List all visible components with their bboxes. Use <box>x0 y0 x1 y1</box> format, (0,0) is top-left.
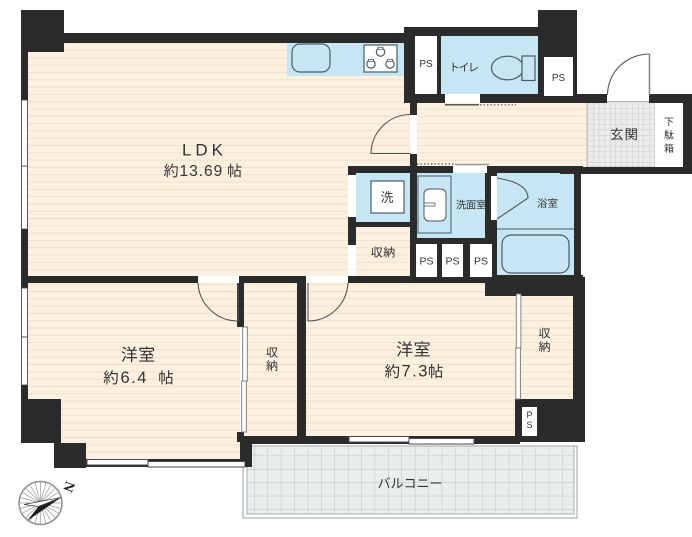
svg-text:P: P <box>526 410 532 420</box>
svg-text:6.4: 6.4 <box>121 369 148 387</box>
svg-text:PS: PS <box>445 256 459 268</box>
svg-text:S: S <box>526 420 532 430</box>
svg-text:LDK: LDK <box>182 141 227 160</box>
svg-text:PS: PS <box>474 256 488 268</box>
svg-text:PS: PS <box>552 73 566 84</box>
svg-text:7.3: 7.3 <box>402 363 429 381</box>
svg-text:PS: PS <box>419 59 433 70</box>
svg-text:PS: PS <box>419 256 433 268</box>
svg-text:13.69: 13.69 <box>180 163 224 180</box>
